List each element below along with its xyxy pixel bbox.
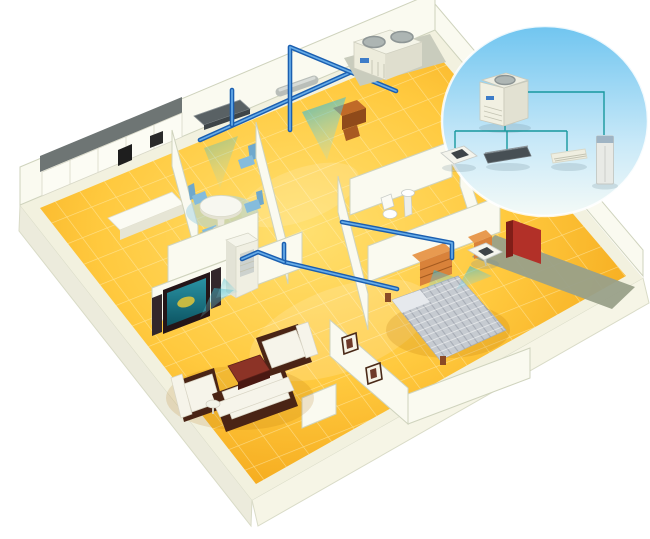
- inset-circle: [442, 26, 648, 216]
- system-inset: [441, 26, 648, 216]
- inset-outdoor-front: [480, 82, 504, 126]
- unit-shadow: [486, 163, 530, 171]
- table-top: [200, 196, 242, 217]
- toilet-bowl: [383, 210, 397, 219]
- inset-fan-grille: [495, 76, 515, 85]
- fan-grille: [391, 32, 413, 43]
- bed-post: [385, 293, 391, 302]
- illustration-canvas: [0, 0, 650, 539]
- wardrobe-side: [506, 220, 513, 258]
- side-table-top: [206, 400, 220, 408]
- unit-shadow: [551, 163, 587, 171]
- basin-bowl: [402, 190, 415, 197]
- unit-shadow: [442, 164, 476, 172]
- fan-grille: [363, 37, 385, 48]
- floor-unit-display: [597, 136, 614, 143]
- inset-outdoor-side: [504, 81, 528, 126]
- hvac-house-illustration: [0, 0, 650, 539]
- brand-label: [360, 58, 369, 63]
- inset-brand-label: [486, 96, 494, 100]
- speaker-left: [152, 294, 162, 336]
- bed-post: [440, 356, 446, 365]
- cassette-shadow: [471, 259, 499, 269]
